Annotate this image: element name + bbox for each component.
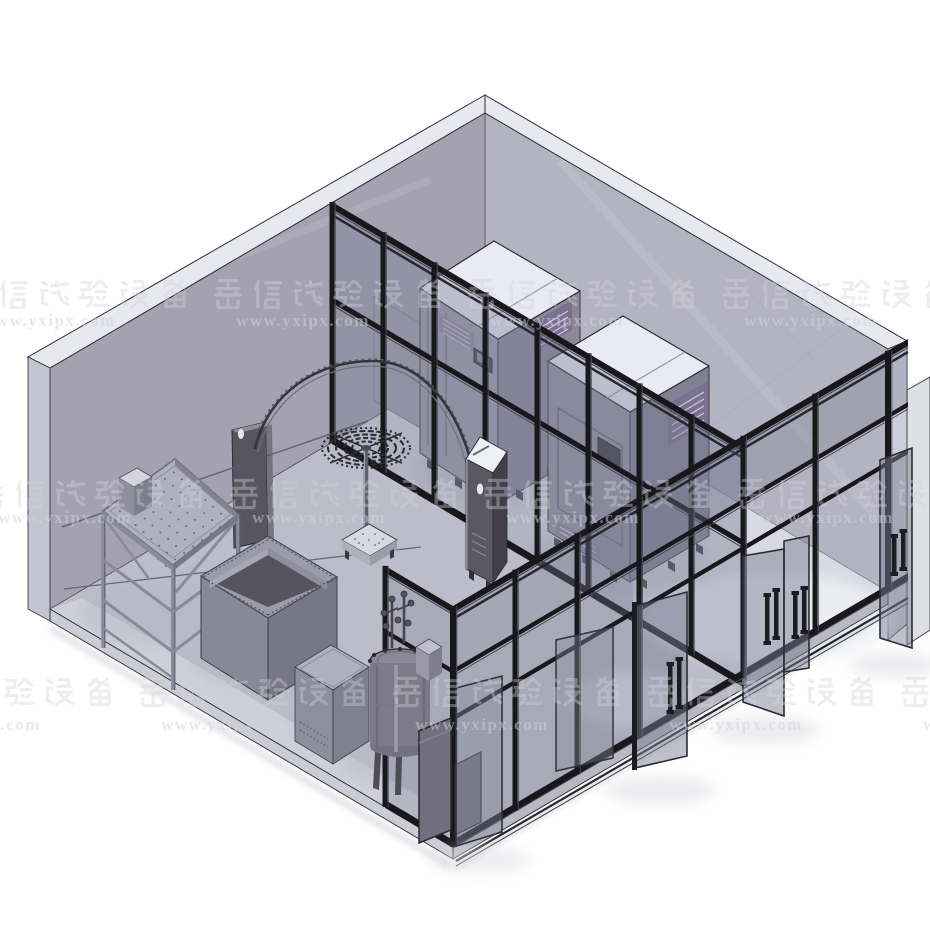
svg-text:www.yxipx.com: www.yxipx.com [744, 311, 878, 330]
svg-text:www.yxipx.com: www.yxipx.com [0, 311, 116, 330]
svg-text:www.yxipx.com: www.yxipx.com [0, 715, 41, 734]
svg-text:www.yxipx.com: www.yxipx.com [0, 508, 132, 527]
svg-text:www.yxipx.com: www.yxipx.com [490, 311, 624, 330]
svg-text:www.yxipx.com: www.yxipx.com [236, 311, 370, 330]
svg-text:www.yxipx.com: www.yxipx.com [506, 508, 640, 527]
svg-text:www.yxipx.com: www.yxipx.com [760, 508, 894, 527]
svg-text:www.yxipx.com: www.yxipx.com [415, 715, 549, 734]
svg-text:www.yxipx.com: www.yxipx.com [923, 715, 930, 734]
svg-text:www.yxipx.com: www.yxipx.com [161, 715, 295, 734]
svg-text:www.yxipx.com: www.yxipx.com [252, 508, 386, 527]
svg-text:www.yxipx.com: www.yxipx.com [669, 715, 803, 734]
